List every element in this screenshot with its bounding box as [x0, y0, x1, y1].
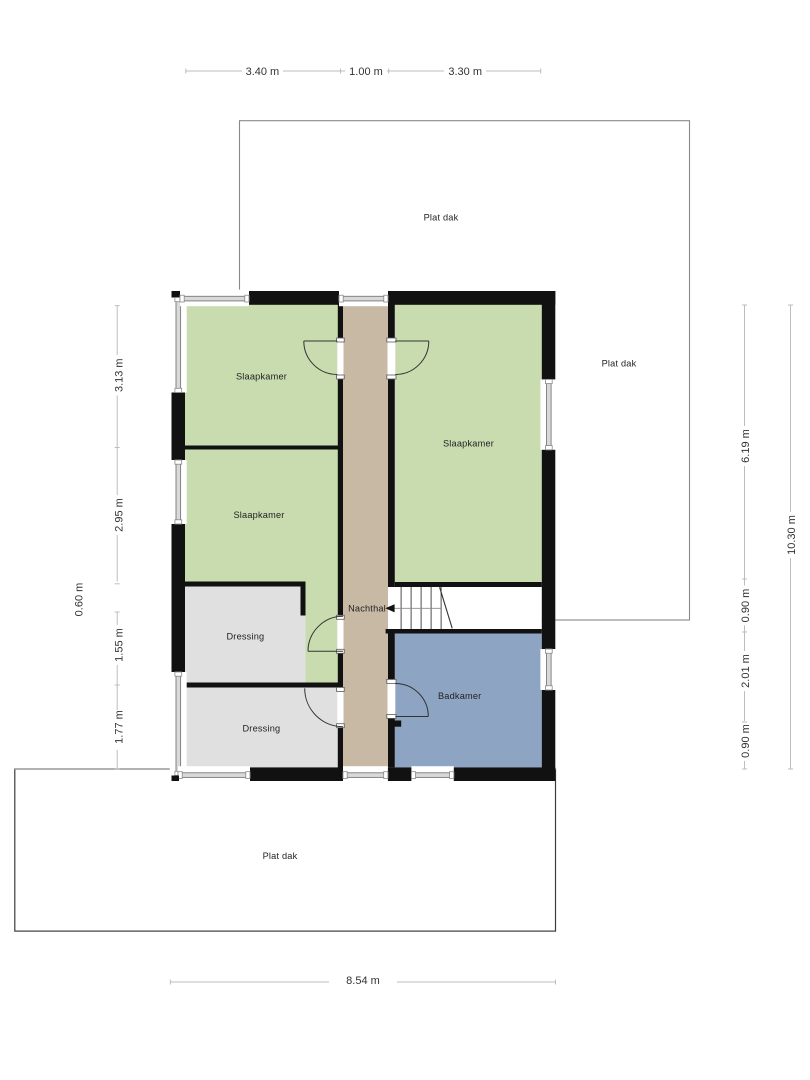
svg-text:Nachthal: Nachthal	[348, 603, 386, 613]
svg-text:Dressing: Dressing	[226, 632, 264, 642]
svg-text:0.60 m: 0.60 m	[74, 583, 86, 617]
svg-text:Badkamer: Badkamer	[438, 691, 481, 701]
svg-text:3.40 m: 3.40 m	[246, 66, 280, 78]
svg-text:3.13 m: 3.13 m	[113, 358, 125, 392]
svg-text:1.00 m: 1.00 m	[349, 66, 383, 78]
svg-text:Slaapkamer: Slaapkamer	[443, 438, 494, 448]
svg-text:Plat dak: Plat dak	[424, 212, 459, 222]
svg-text:6.19 m: 6.19 m	[740, 429, 752, 463]
svg-text:0.90 m: 0.90 m	[740, 724, 752, 758]
svg-text:1.55 m: 1.55 m	[113, 628, 125, 662]
svg-text:10.30 m: 10.30 m	[786, 515, 798, 555]
svg-text:0.90 m: 0.90 m	[740, 589, 752, 623]
svg-text:Slaapkamer: Slaapkamer	[233, 510, 284, 520]
svg-text:3.30 m: 3.30 m	[448, 66, 482, 78]
svg-text:Dressing: Dressing	[242, 723, 280, 733]
svg-text:1.77 m: 1.77 m	[113, 710, 125, 744]
svg-text:Slaapkamer: Slaapkamer	[236, 371, 287, 381]
svg-text:Plat dak: Plat dak	[602, 358, 637, 368]
svg-text:2.01 m: 2.01 m	[740, 654, 752, 688]
svg-text:2.95 m: 2.95 m	[113, 498, 125, 532]
svg-text:Plat dak: Plat dak	[263, 851, 298, 861]
svg-text:8.54 m: 8.54 m	[346, 975, 380, 987]
